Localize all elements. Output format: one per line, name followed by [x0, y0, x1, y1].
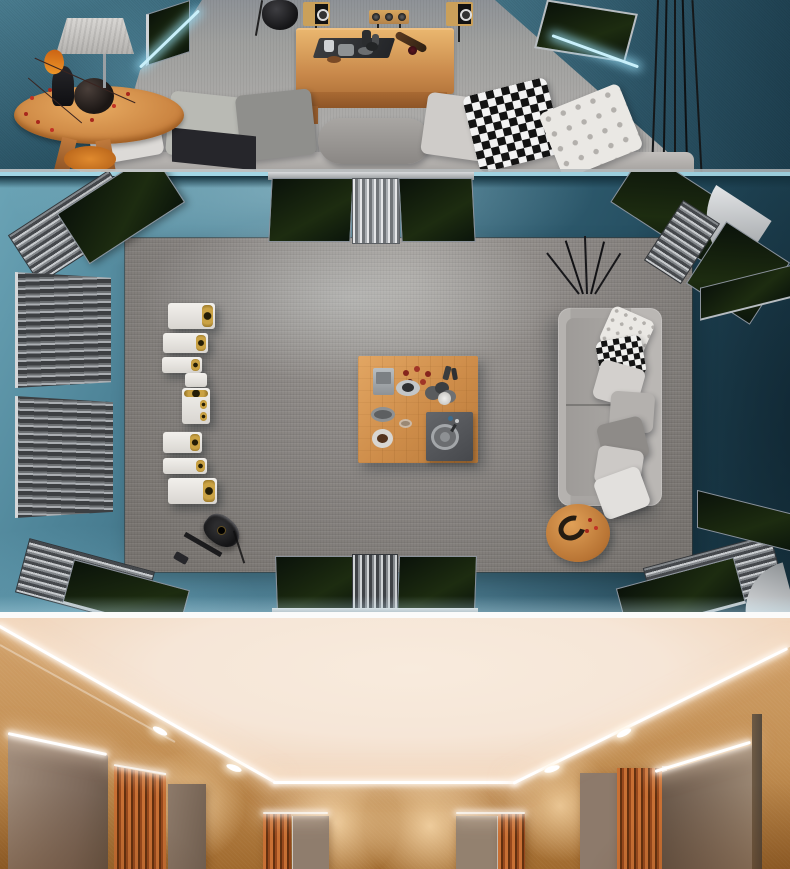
- driver: [372, 13, 380, 21]
- coffee-table-apron: [303, 92, 447, 108]
- curtain-diffuser: [352, 178, 400, 244]
- rod: [682, 0, 689, 172]
- left-wall-fabric-panel-2: [168, 784, 206, 869]
- speaker-gold-band: [184, 390, 208, 397]
- cup: [324, 40, 334, 52]
- speaker-6: [163, 458, 207, 474]
- rod: [651, 0, 659, 172]
- back-wall-fabric-right: [456, 816, 498, 869]
- left-wall-diffuser-upper: [15, 272, 111, 388]
- floor-bottom-glow: [0, 596, 790, 612]
- speaker-4-vertical: [182, 388, 210, 424]
- left-wall-diffuser-lower: [15, 396, 113, 518]
- tray-item-white: [455, 419, 459, 423]
- back-wall-fabric-left: [292, 816, 329, 869]
- panel-edge-light: [263, 812, 328, 814]
- berry: [24, 112, 28, 116]
- speaker-gold-port: [190, 434, 200, 451]
- goblet: [408, 46, 417, 55]
- back-wall-slat-left: [263, 814, 291, 869]
- vase-cluster: [362, 28, 392, 54]
- panel-top-room: [0, 0, 790, 172]
- left-wall-fabric-panel: [8, 734, 108, 869]
- downlight: [152, 725, 169, 738]
- berry: [90, 118, 94, 122]
- espresso-cup: [403, 370, 409, 376]
- twig-decor: [548, 234, 628, 294]
- bolster-cushion: [318, 118, 430, 164]
- speaker-7: [168, 478, 217, 504]
- driver: [398, 13, 406, 21]
- rod: [691, 0, 702, 172]
- speaker-3: [162, 357, 202, 373]
- rod: [662, 0, 667, 172]
- bowl-ring: [371, 407, 395, 422]
- berry: [594, 526, 598, 530]
- panel-top-down-room: [0, 172, 790, 618]
- speaker-gold-dot: [200, 412, 207, 421]
- speaker-2: [163, 333, 208, 353]
- coffee-cup: [372, 429, 393, 448]
- basket: [338, 44, 354, 56]
- speaker-gold-port: [196, 335, 206, 351]
- speaker-1: [168, 303, 215, 329]
- right-wall-dark-edge: [752, 714, 762, 869]
- top-center-panel-right: [398, 178, 475, 242]
- radio-grille: [376, 372, 391, 384]
- berry: [126, 92, 130, 96]
- mini-saucer: [399, 419, 412, 428]
- saucer-with-cup: [396, 380, 420, 396]
- twig: [584, 236, 588, 294]
- berry: [588, 518, 592, 522]
- bookshelf-speaker-left: [303, 2, 330, 26]
- speaker-stand-pole: [458, 26, 460, 42]
- branch-line: [28, 78, 82, 124]
- right-corner-fabric-panel: [580, 773, 617, 869]
- espresso-cup: [425, 371, 431, 377]
- bowl: [327, 56, 341, 63]
- top-center-panel-left: [268, 178, 353, 242]
- vase: [366, 42, 378, 51]
- berry: [36, 120, 40, 124]
- lamp-shade: [56, 18, 134, 54]
- berry: [50, 128, 54, 132]
- speaker-gold-port: [191, 359, 200, 371]
- speaker-gold-port: [203, 480, 215, 502]
- panel-edge-light: [456, 812, 525, 814]
- cup-top: [402, 383, 414, 392]
- led-cove-center: [273, 781, 517, 784]
- speaker-cone: [460, 9, 472, 21]
- rod: [674, 0, 676, 172]
- speaker-gold-dot: [200, 400, 207, 409]
- panel-beige-theater: [0, 618, 790, 869]
- bookshelf-speaker-right: [446, 2, 473, 26]
- plate-center: [440, 432, 450, 442]
- speaker-gold-port: [202, 305, 213, 327]
- espresso-cup: [414, 366, 420, 372]
- right-wall-slat-panel: [617, 768, 662, 869]
- back-wall-slat-right: [498, 814, 525, 869]
- guitar-soundhole: [217, 526, 226, 535]
- decor-rods: [650, 0, 710, 172]
- berry: [112, 104, 116, 108]
- berry-branch: [20, 70, 140, 140]
- berry: [48, 88, 52, 92]
- tray-item-blue: [448, 416, 453, 421]
- left-wall-slat-panel: [114, 766, 166, 869]
- image-collage: [0, 0, 790, 869]
- berry: [585, 529, 589, 533]
- speaker-shelf: [185, 373, 207, 387]
- decor-white-ball: [438, 392, 451, 405]
- speaker-cone: [317, 9, 329, 21]
- coffee-surface: [377, 434, 388, 443]
- speaker-5: [163, 432, 202, 453]
- center-channel-speaker: [369, 10, 409, 24]
- hanging-egg-chair: [262, 0, 298, 30]
- speaker-gold-port: [196, 460, 205, 472]
- berry: [30, 96, 34, 100]
- driver: [385, 13, 393, 21]
- table-radio: [373, 368, 394, 395]
